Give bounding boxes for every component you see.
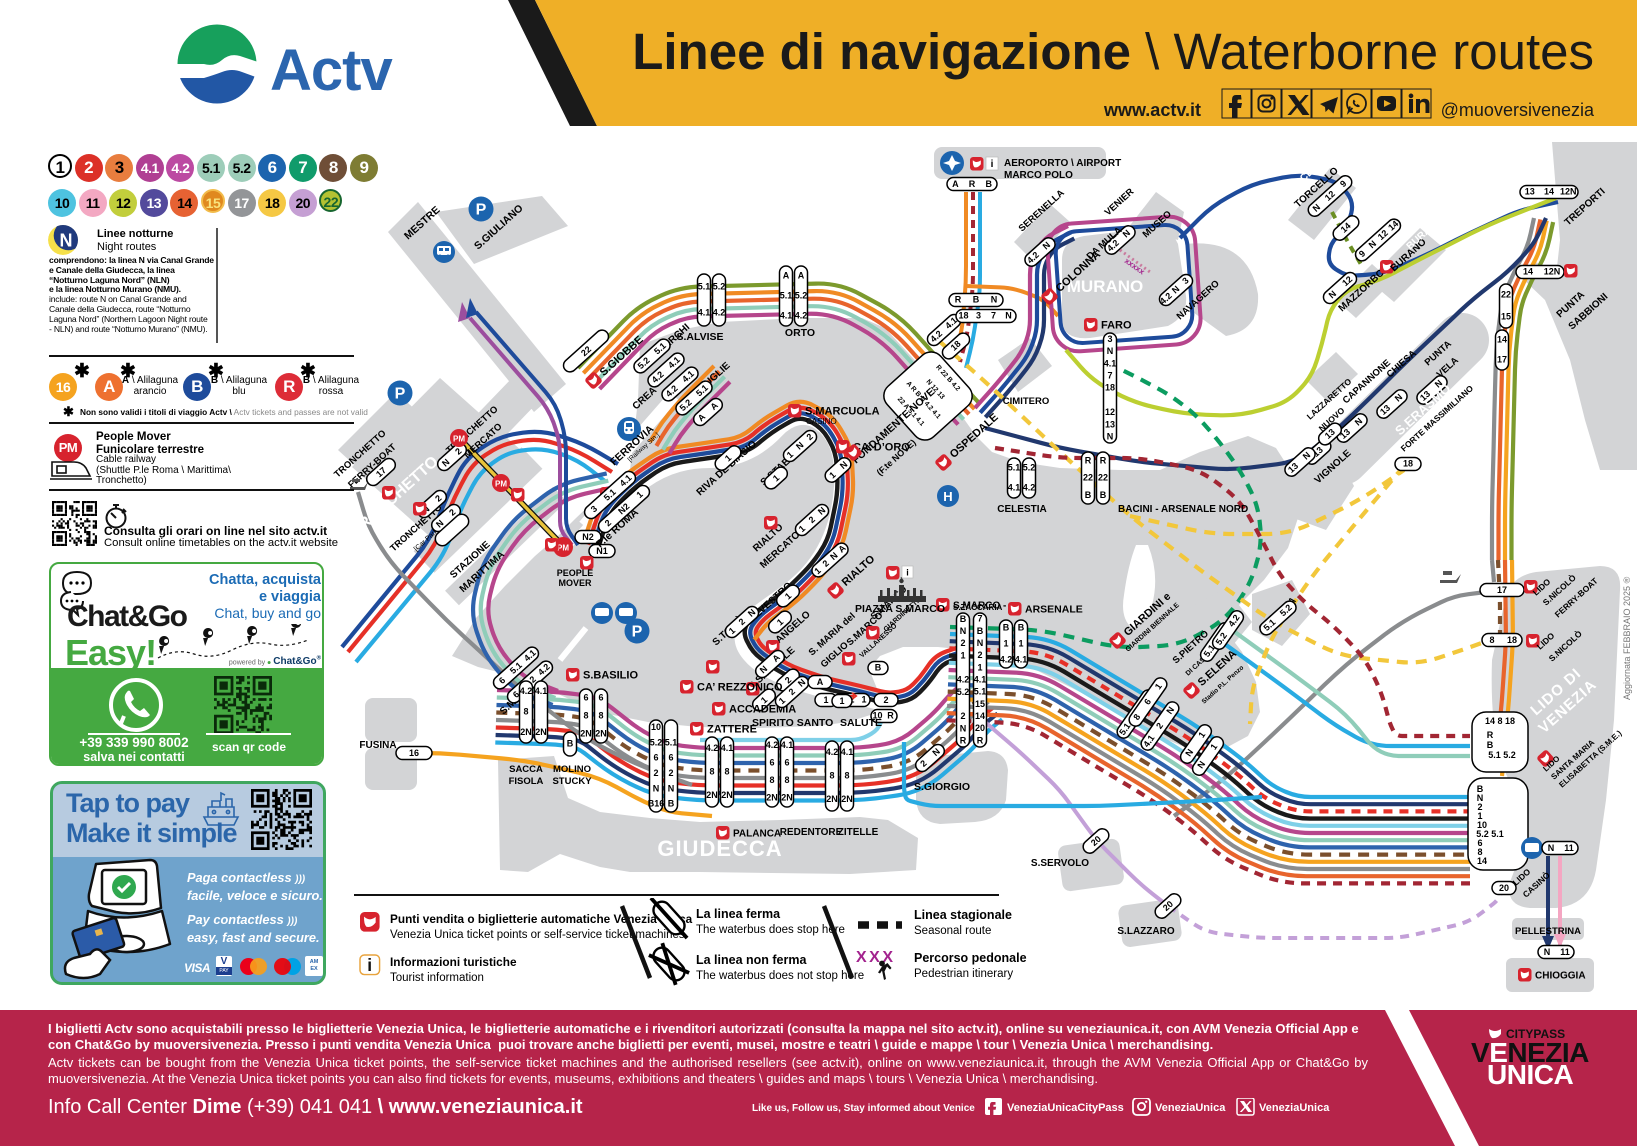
svg-text:B: B (875, 663, 882, 673)
svg-text:4.2: 4.2 (713, 308, 726, 318)
svg-text:CASINÒ: CASINÒ (806, 417, 837, 426)
svg-text:16: 16 (409, 748, 419, 758)
svg-text:8: 8 (829, 771, 834, 781)
svg-text:2N: 2N (721, 790, 733, 800)
svg-text:FARO: FARO (1101, 320, 1132, 332)
svg-text:B: B (668, 799, 675, 809)
svg-text:4.1: 4.1 (780, 311, 793, 321)
svg-text:S.ZACCARIA: S.ZACCARIA (953, 603, 1003, 612)
svg-text:8: 8 (724, 767, 729, 777)
svg-text:PM: PM (557, 544, 569, 553)
svg-text:2N: 2N (535, 727, 547, 737)
svg-text:N: N (1005, 311, 1012, 321)
svg-text:1: 1 (1003, 639, 1008, 649)
svg-text:5.1: 5.1 (780, 291, 793, 301)
svg-text:La linea ferma: La linea ferma (696, 907, 781, 921)
svg-text:7: 7 (991, 311, 996, 321)
svg-text:S.SERVOLO: S.SERVOLO (1031, 858, 1089, 869)
svg-text:22: 22 (1098, 473, 1108, 483)
svg-text:18: 18 (1507, 635, 1517, 645)
svg-text:REDENTORE: REDENTORE (780, 827, 843, 838)
svg-text:R: R (977, 735, 984, 745)
svg-text:22: 22 (1501, 290, 1511, 300)
svg-text:A: A (817, 677, 824, 687)
svg-text:4.1: 4.1 (841, 747, 854, 757)
svg-text:N: N (1107, 346, 1114, 356)
svg-text:8: 8 (1489, 635, 1494, 645)
svg-text:Seasonal route: Seasonal route (914, 925, 991, 937)
svg-text:6: 6 (598, 693, 603, 703)
svg-text:7: 7 (1107, 371, 1112, 381)
svg-text:www.actv.it: www.actv.it (1103, 100, 1201, 120)
svg-text:FISOLA: FISOLA (509, 776, 544, 787)
svg-text:4.2: 4.2 (1000, 655, 1013, 665)
svg-text:14 8 18: 14 8 18 (1485, 716, 1515, 726)
svg-text:6: 6 (784, 758, 789, 768)
svg-text:1: 1 (977, 662, 982, 672)
svg-text:18: 18 (1105, 383, 1115, 393)
svg-text:5.2: 5.2 (795, 291, 808, 301)
svg-text:B: B (960, 614, 967, 624)
svg-text:La linea non ferma: La linea non ferma (696, 953, 807, 967)
svg-text:N: N (653, 783, 660, 793)
svg-text:2: 2 (668, 768, 673, 778)
svg-text:A: A (798, 271, 805, 281)
svg-text:11: 11 (1564, 843, 1574, 853)
svg-text:2: 2 (960, 638, 965, 648)
svg-text:Linea stagionale: Linea stagionale (914, 908, 1012, 922)
svg-text:8: 8 (844, 771, 849, 781)
svg-text:4.2: 4.2 (706, 743, 719, 753)
svg-text:Percorso pedonale: Percorso pedonale (914, 951, 1027, 965)
svg-text:4.2: 4.2 (1023, 483, 1036, 493)
svg-text:5.1: 5.1 (974, 687, 987, 697)
svg-text:1: 1 (1018, 639, 1023, 649)
svg-text:MURANO: MURANO (1067, 277, 1144, 296)
svg-text:4.1: 4.1 (1015, 655, 1028, 665)
svg-text:VeneziaUnica: VeneziaUnica (1259, 1102, 1330, 1114)
svg-text:2N: 2N (781, 793, 793, 803)
svg-text:4.2: 4.2 (520, 686, 533, 696)
svg-text:SPIRITO SANTO: SPIRITO SANTO (752, 717, 833, 729)
svg-text:P: P (476, 202, 487, 219)
svg-text:The waterbus does not stop her: The waterbus does not stop here (696, 970, 864, 982)
svg-text:1: 1 (960, 650, 965, 660)
svg-text:6: 6 (668, 753, 673, 763)
svg-text:N: N (991, 295, 998, 305)
svg-text:4.2: 4.2 (795, 311, 808, 321)
svg-text:N2: N2 (582, 532, 594, 542)
svg-text:PM: PM (495, 480, 507, 489)
svg-text:4.2: 4.2 (826, 747, 839, 757)
svg-text:B: B (567, 739, 574, 749)
svg-text:14: 14 (975, 711, 985, 721)
svg-text:8: 8 (523, 707, 528, 717)
svg-text:14: 14 (1523, 267, 1533, 277)
svg-text:MARCO POLO: MARCO POLO (1004, 170, 1073, 181)
svg-text:B: B (1100, 490, 1107, 500)
svg-text:8: 8 (784, 775, 789, 785)
svg-text:B: B (1487, 740, 1494, 750)
svg-text:6: 6 (769, 758, 774, 768)
svg-text:7: 7 (977, 614, 982, 624)
svg-text:8: 8 (583, 711, 588, 721)
svg-text:20: 20 (975, 723, 985, 733)
svg-text:CIMITERO: CIMITERO (1003, 396, 1049, 407)
svg-text:Aggiornata FEBBRAIO 2025 ®: Aggiornata FEBBRAIO 2025 ® (1622, 576, 1632, 700)
svg-text:i: i (906, 568, 909, 578)
svg-text:ARSENALE: ARSENALE (1025, 604, 1083, 616)
svg-text:VeneziaUnicaCityPass: VeneziaUnicaCityPass (1007, 1102, 1124, 1114)
svg-text:Linee di navigazione \ Waterbo: Linee di navigazione \ Waterborne routes (632, 23, 1594, 80)
svg-text:STUCKY: STUCKY (552, 776, 592, 787)
svg-text:2N: 2N (595, 729, 607, 739)
svg-text:2N: 2N (580, 729, 592, 739)
svg-text:S.ALVISE: S.ALVISE (676, 331, 723, 343)
svg-text:13: 13 (1525, 187, 1535, 197)
svg-text:22: 22 (1083, 473, 1093, 483)
svg-text:20: 20 (1499, 883, 1509, 893)
svg-text:@muoversivenezia: @muoversivenezia (1441, 100, 1595, 120)
svg-text:R: R (955, 295, 962, 305)
svg-text:14: 14 (1477, 856, 1487, 866)
svg-text:5.1 5.2: 5.1 5.2 (1488, 750, 1516, 760)
svg-text:N: N (960, 723, 967, 733)
svg-text:2N: 2N (520, 727, 532, 737)
svg-text:S.GIORGIO: S.GIORGIO (914, 781, 970, 793)
svg-text:A: A (783, 271, 790, 281)
svg-text:5.1: 5.1 (698, 282, 711, 292)
svg-text:B: B (1085, 490, 1092, 500)
svg-text:8: 8 (598, 711, 603, 721)
svg-text:4.1: 4.1 (698, 308, 711, 318)
svg-text:B: B (1018, 623, 1025, 633)
svg-text:A: A (952, 179, 959, 189)
svg-text:8: 8 (709, 767, 714, 777)
svg-text:VENIER: VENIER (1103, 186, 1137, 218)
svg-text:14: 14 (1497, 335, 1507, 345)
svg-text:SACCA: SACCA (509, 764, 543, 775)
svg-text:N: N (960, 626, 967, 636)
svg-text:MOVER: MOVER (558, 578, 592, 588)
svg-text:ZITELLE: ZITELLE (838, 827, 879, 838)
svg-text:Pedestrian itinerary: Pedestrian itinerary (914, 968, 1013, 980)
svg-text:6: 6 (583, 693, 588, 703)
svg-text:12: 12 (1105, 407, 1115, 417)
svg-text:N: N (1107, 432, 1114, 442)
svg-text:2N: 2N (841, 794, 853, 804)
svg-text:8: 8 (769, 775, 774, 785)
svg-text:6: 6 (653, 753, 658, 763)
svg-text:12N: 12N (1560, 187, 1577, 197)
svg-text:4.2: 4.2 (766, 740, 779, 750)
svg-text:4.1: 4.1 (1008, 483, 1021, 493)
svg-text:5.2: 5.2 (713, 282, 726, 292)
svg-text:18: 18 (1403, 459, 1413, 469)
svg-text:15: 15 (1501, 312, 1511, 322)
svg-text:5.1: 5.1 (1008, 463, 1021, 473)
svg-text:4.1: 4.1 (721, 743, 734, 753)
svg-text:2: 2 (883, 695, 888, 705)
svg-text:FUSINA: FUSINA (359, 740, 396, 751)
svg-text:14: 14 (1544, 187, 1554, 197)
svg-text:15: 15 (975, 699, 985, 709)
svg-text:N: N (60, 231, 73, 251)
svg-text:ZATTERE: ZATTERE (707, 724, 757, 736)
svg-text:5.2: 5.2 (957, 687, 970, 697)
svg-text:12N: 12N (1544, 267, 1561, 277)
svg-text:2N: 2N (766, 793, 778, 803)
svg-text:PIAZZA S.MARCO: PIAZZA S.MARCO (855, 603, 945, 615)
svg-text:B: B (973, 295, 980, 305)
svg-text:UNICA: UNICA (1487, 1059, 1573, 1090)
svg-text:S.MARCUOLA: S.MARCUOLA (805, 406, 880, 418)
svg-text:2N: 2N (706, 790, 718, 800)
svg-text:R: R (1100, 455, 1107, 465)
svg-text:4.2: 4.2 (957, 675, 970, 685)
svg-text:5.2: 5.2 (1023, 463, 1036, 473)
svg-text:MOLINO: MOLINO (553, 764, 591, 775)
svg-text:1: 1 (861, 695, 866, 705)
svg-text:ORTO: ORTO (785, 327, 815, 339)
svg-text:R: R (887, 711, 894, 721)
svg-text:18: 18 (958, 311, 968, 321)
svg-text:4.1: 4.1 (781, 740, 794, 750)
svg-text:2N: 2N (826, 794, 838, 804)
svg-text:B: B (985, 179, 992, 189)
svg-text:3: 3 (1107, 334, 1112, 344)
svg-text:R: R (960, 736, 967, 746)
svg-text:2: 2 (653, 768, 658, 778)
svg-text:PM: PM (453, 435, 465, 444)
svg-text:Actv: Actv (270, 38, 392, 103)
svg-text:5.2: 5.2 (650, 737, 663, 747)
svg-text:H: H (943, 489, 952, 504)
svg-text:4.1: 4.1 (974, 675, 987, 685)
svg-text:2: 2 (977, 650, 982, 660)
svg-text:B16: B16 (648, 799, 665, 809)
svg-text:VeneziaUnica: VeneziaUnica (1155, 1102, 1226, 1114)
svg-text:BACINI - ARSENALE NORD: BACINI - ARSENALE NORD (1118, 504, 1248, 515)
svg-text:The waterbus does stop here: The waterbus does stop here (696, 924, 845, 936)
svg-text:13: 13 (1105, 419, 1115, 429)
svg-text:Informazioni turistiche: Informazioni turistiche (390, 955, 517, 969)
svg-text:R: R (969, 179, 976, 189)
svg-text:N: N (668, 783, 675, 793)
svg-text:5.1: 5.1 (665, 737, 678, 747)
svg-text:P: P (632, 624, 643, 641)
svg-text:17: 17 (1497, 585, 1507, 595)
svg-text:GIUDECCA: GIUDECCA (657, 836, 782, 861)
svg-text:B: B (1003, 623, 1010, 633)
svg-text:S.BASILIO: S.BASILIO (583, 670, 638, 682)
svg-text:3: 3 (976, 311, 981, 321)
svg-text:XXX: XXX (856, 949, 896, 966)
svg-text:4.1: 4.1 (1104, 358, 1117, 368)
svg-text:1: 1 (839, 696, 844, 706)
svg-text:CELESTIA: CELESTIA (997, 504, 1046, 515)
svg-text:N: N (977, 638, 984, 648)
svg-text:10: 10 (651, 722, 661, 732)
svg-text:i: i (991, 159, 994, 170)
svg-text:R: R (1085, 455, 1092, 465)
svg-text:Venezia Unica ticket points or: Venezia Unica ticket points or self-serv… (390, 929, 685, 941)
svg-text:AEROPORTO \ AIRPORT: AEROPORTO \ AIRPORT (1004, 158, 1121, 169)
svg-text:Tourist information: Tourist information (390, 972, 484, 984)
svg-text:B: B (977, 626, 984, 636)
svg-text:4.1: 4.1 (535, 686, 548, 696)
svg-text:Punti vendita o biglietterie a: Punti vendita o biglietterie automatiche… (390, 912, 693, 926)
svg-text:1: 1 (823, 695, 828, 705)
svg-text:P: P (395, 386, 406, 403)
svg-text:SALUTE: SALUTE (840, 717, 882, 729)
svg-text:R: R (1487, 730, 1494, 740)
svg-text:17: 17 (1497, 355, 1507, 365)
svg-text:N: N (1548, 843, 1555, 853)
svg-text:2: 2 (960, 711, 965, 721)
